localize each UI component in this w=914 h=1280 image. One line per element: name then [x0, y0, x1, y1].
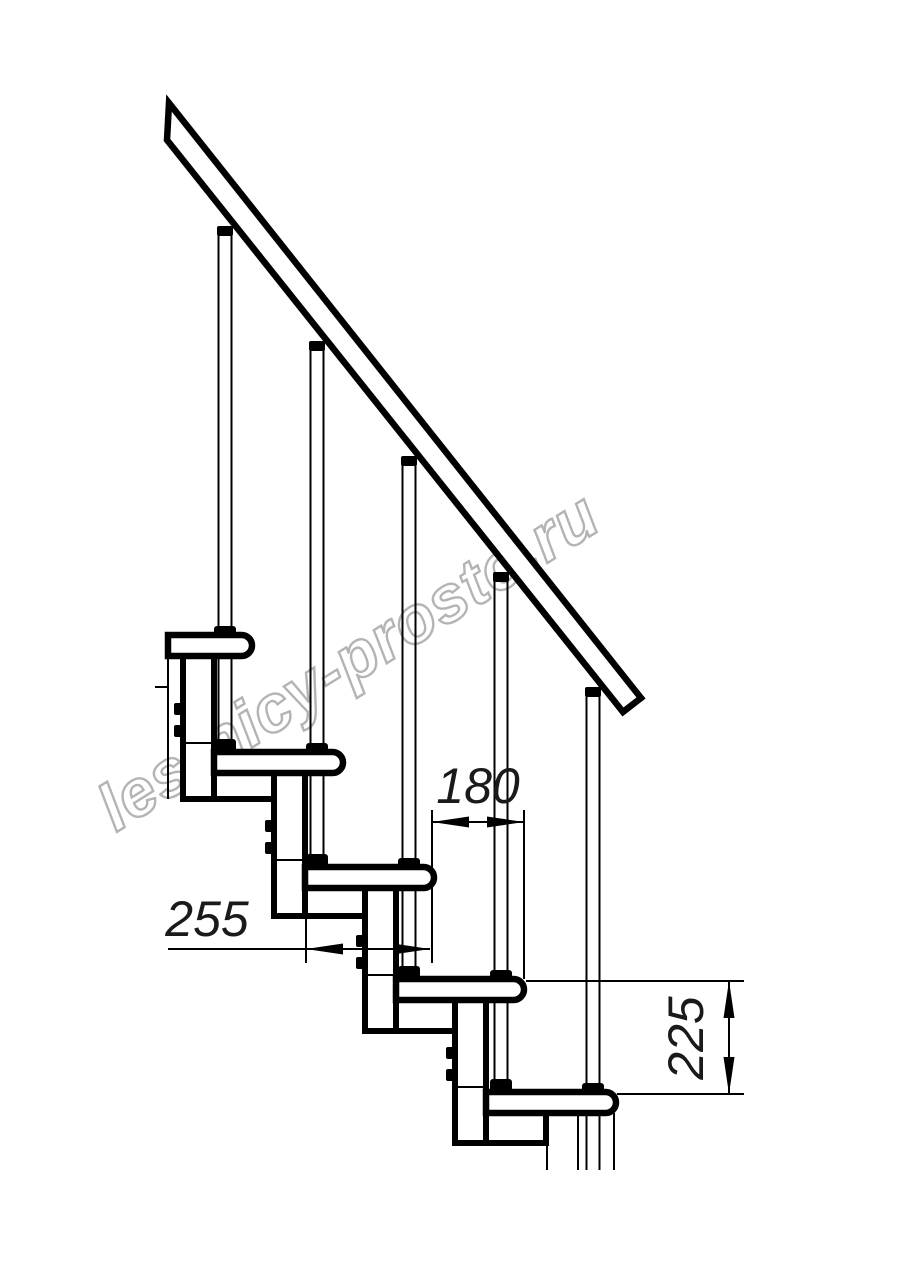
tread-4 [396, 979, 524, 1000]
arrow-left-icon [432, 817, 469, 828]
bolt [265, 820, 274, 832]
dimension-225: 225 [526, 981, 744, 1094]
tread-5 [486, 1092, 616, 1113]
arrow-left-icon [306, 944, 343, 955]
dim-225-label: 225 [658, 996, 714, 1081]
stem-5 [587, 1113, 615, 1170]
dim-180-label: 180 [436, 758, 520, 814]
spine-module-4 [446, 1000, 546, 1143]
spine-module-3 [356, 888, 456, 1031]
watermark-text: lestnicy-prosto.ru [84, 477, 611, 845]
baluster-1 [214, 226, 236, 635]
spine-module-2 [265, 773, 365, 916]
arrow-up-icon [724, 981, 735, 1018]
stem-4 [490, 1000, 512, 1092]
bolt [356, 935, 365, 947]
tread-2 [214, 752, 343, 773]
bolt [174, 725, 183, 737]
drawing-page: lestnicy-prosto.ru [0, 0, 914, 1280]
spine-module-5 [547, 1113, 578, 1170]
bolt [265, 842, 274, 854]
bolt [446, 1047, 455, 1059]
dimension-180: 180 [432, 758, 524, 979]
bolt [356, 957, 365, 969]
bolt [174, 703, 183, 715]
stem-3 [398, 888, 420, 979]
arrow-right-icon [393, 944, 430, 955]
arrow-right-icon [487, 817, 524, 828]
stem-2 [306, 773, 328, 867]
arrow-down-icon [724, 1057, 735, 1094]
staircase-technical-drawing: lestnicy-prosto.ru [0, 0, 914, 1280]
bolt [446, 1069, 455, 1081]
tread-3 [305, 867, 434, 888]
dim-255-label: 255 [164, 891, 249, 947]
baluster-5 [582, 687, 604, 1092]
tread-1 [168, 635, 252, 656]
